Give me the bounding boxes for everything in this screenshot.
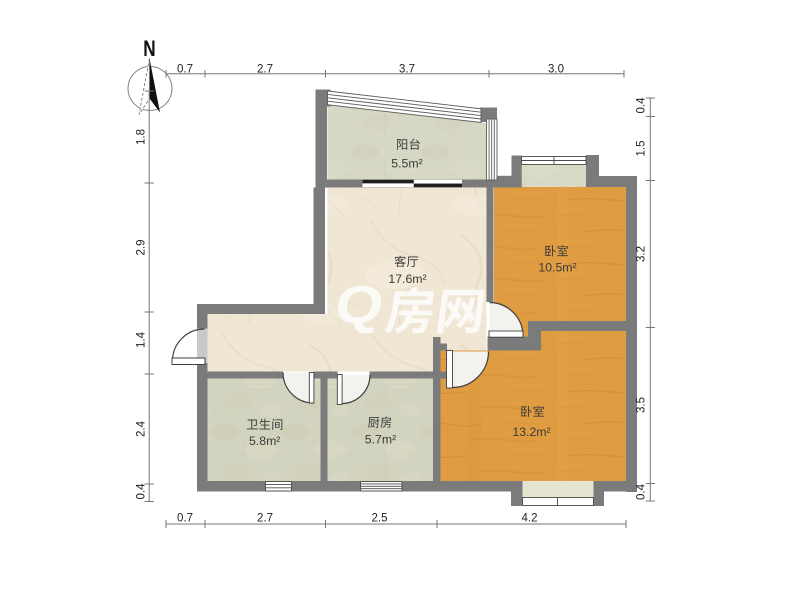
svg-text:13.2m²: 13.2m²	[512, 425, 550, 439]
svg-text:3.2: 3.2	[636, 246, 648, 262]
svg-text:5.8m²: 5.8m²	[249, 434, 280, 448]
svg-text:0.4: 0.4	[636, 97, 648, 114]
svg-text:0.4: 0.4	[636, 483, 648, 500]
svg-text:0.4: 0.4	[136, 483, 148, 500]
svg-text:2.7: 2.7	[257, 64, 273, 76]
svg-text:3.0: 3.0	[548, 64, 564, 76]
svg-text:17.6m²: 17.6m²	[388, 272, 426, 286]
svg-text:2.7: 2.7	[257, 513, 273, 525]
svg-text:2.4: 2.4	[136, 420, 148, 437]
svg-text:1.8: 1.8	[136, 129, 148, 145]
svg-text:1.5: 1.5	[636, 141, 648, 157]
svg-text:4.2: 4.2	[522, 513, 538, 525]
svg-text:3.5: 3.5	[636, 397, 648, 413]
svg-text:2.9: 2.9	[136, 240, 148, 256]
svg-text:5.7m²: 5.7m²	[365, 433, 396, 447]
svg-text:0.7: 0.7	[177, 513, 193, 525]
svg-text:1.4: 1.4	[136, 331, 148, 348]
svg-text:5.5m²: 5.5m²	[391, 156, 422, 170]
svg-text:2.5: 2.5	[372, 513, 388, 525]
svg-text:3.7: 3.7	[399, 64, 415, 76]
svg-text:N: N	[143, 37, 155, 62]
svg-text:10.5m²: 10.5m²	[538, 261, 576, 275]
svg-text:0.7: 0.7	[177, 64, 193, 76]
